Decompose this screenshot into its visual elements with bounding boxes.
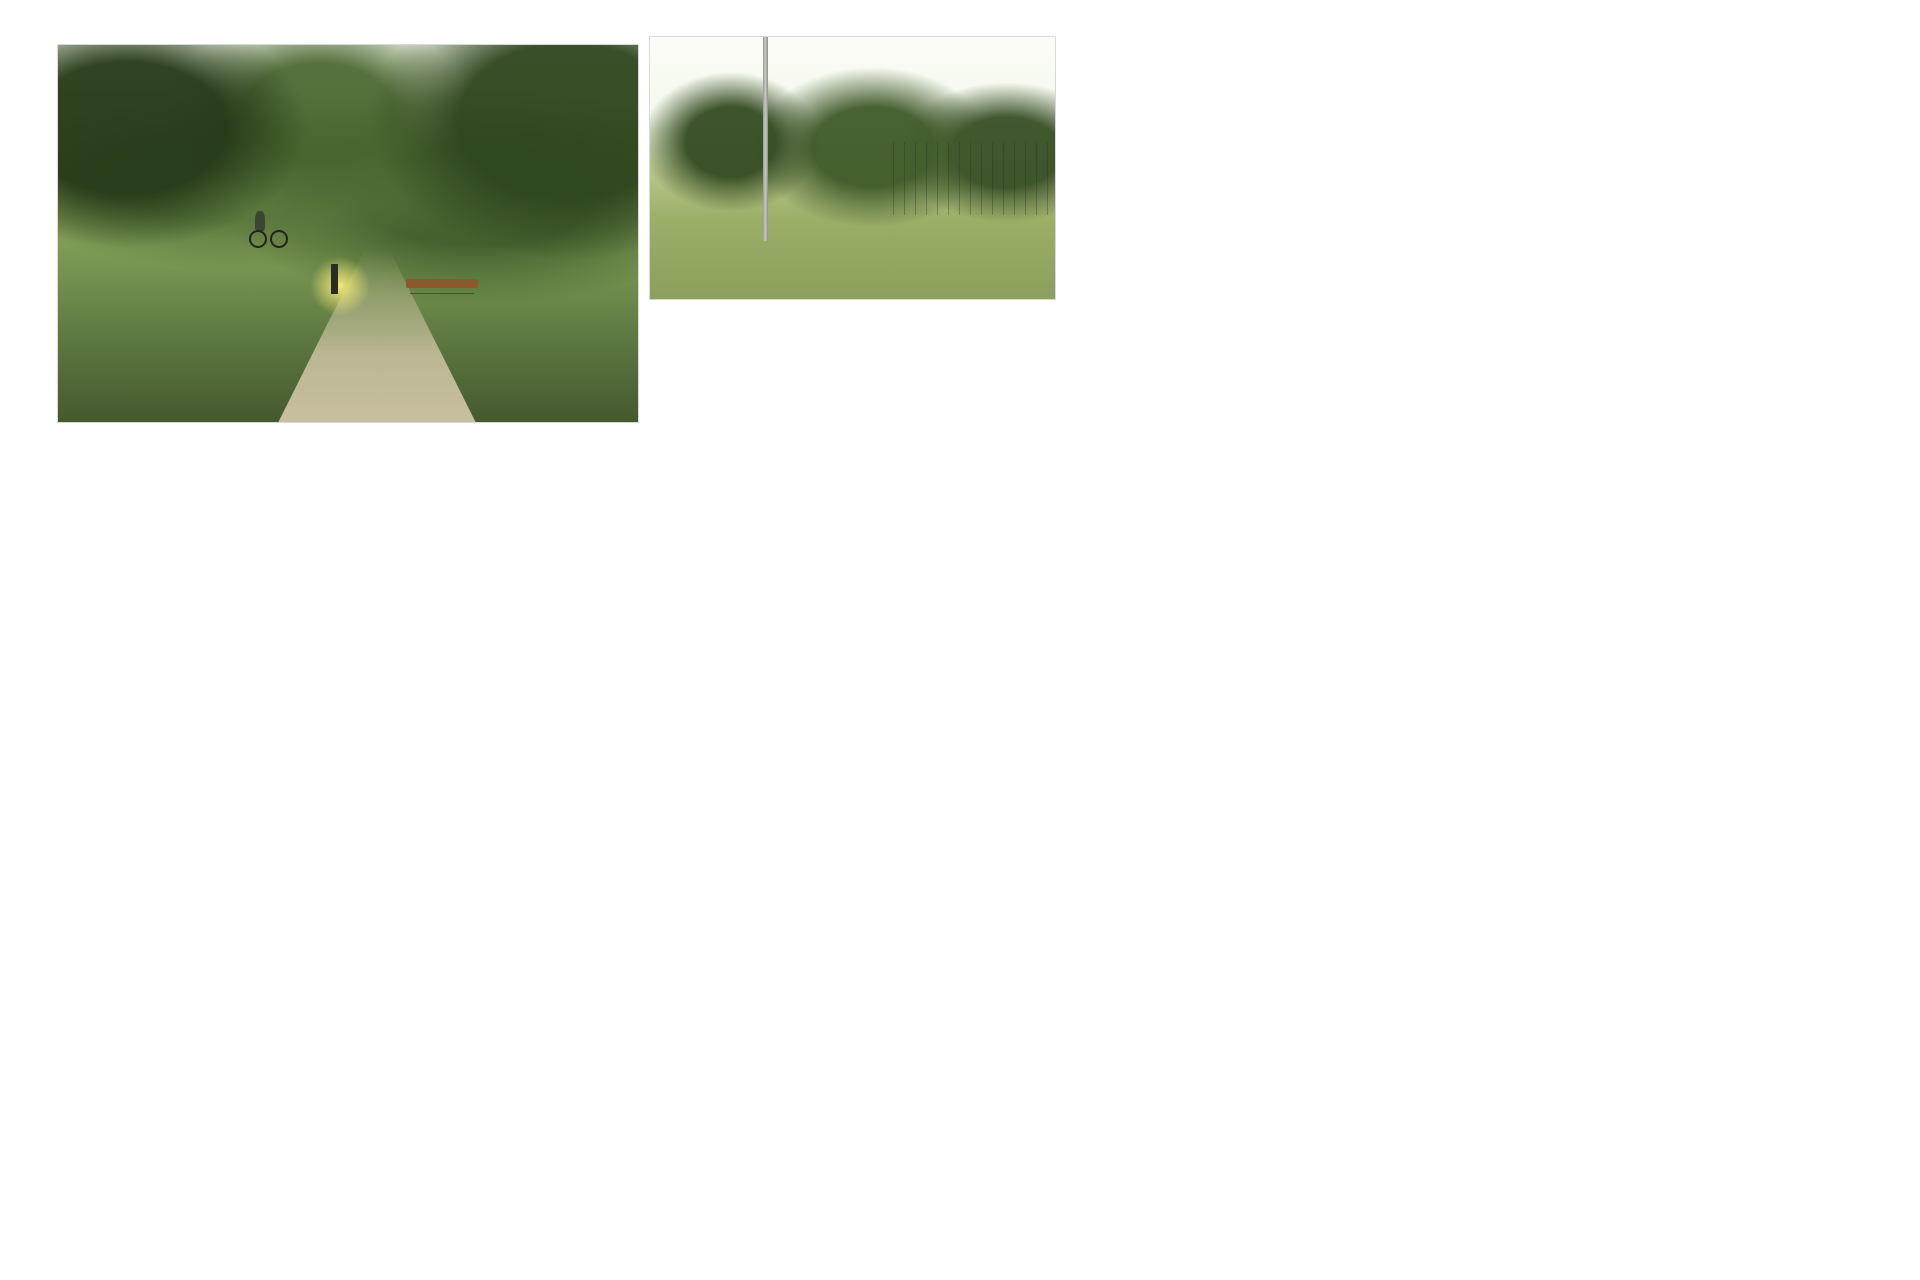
site-plan-page: { "photos": { "caption1": "Projektowana … (0, 0, 1920, 1280)
site-plan-map (0, 0, 1920, 1280)
